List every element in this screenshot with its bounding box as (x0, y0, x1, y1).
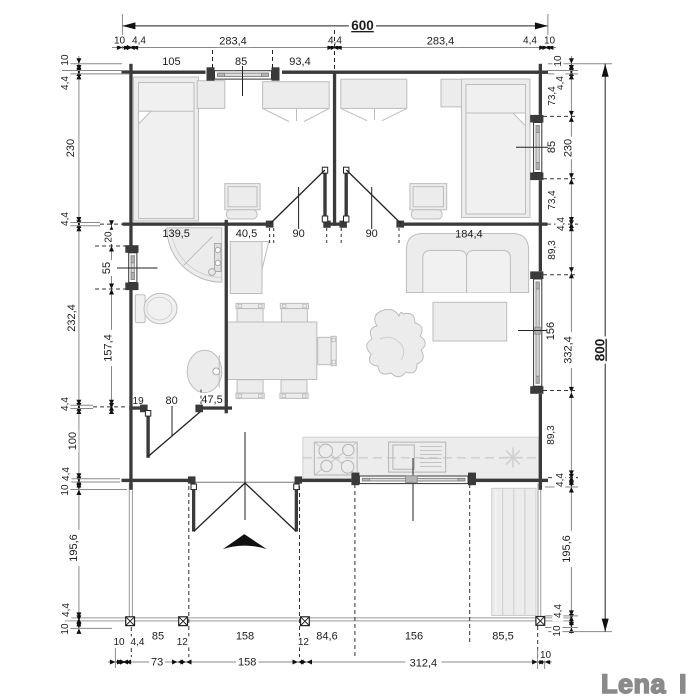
svg-text:4,4: 4,4 (523, 36, 537, 47)
svg-text:283,4: 283,4 (219, 36, 247, 48)
svg-text:73: 73 (151, 657, 163, 669)
svg-text:12: 12 (177, 637, 189, 648)
svg-text:10: 10 (60, 484, 71, 496)
svg-text:157,4: 157,4 (103, 334, 115, 362)
svg-text:89,3: 89,3 (546, 425, 557, 445)
svg-text:84,6: 84,6 (316, 631, 337, 643)
svg-text:10: 10 (544, 36, 556, 47)
svg-text:19: 19 (133, 396, 145, 407)
svg-text:139,5: 139,5 (162, 228, 190, 240)
svg-text:195,6: 195,6 (68, 534, 80, 562)
svg-text:800: 800 (593, 339, 608, 362)
svg-text:4,4: 4,4 (61, 603, 72, 617)
svg-text:12: 12 (298, 637, 310, 648)
svg-text:90: 90 (366, 228, 378, 240)
svg-text:312,4: 312,4 (410, 658, 438, 670)
svg-text:10: 10 (540, 650, 552, 661)
svg-text:85: 85 (152, 631, 164, 643)
svg-text:10: 10 (114, 36, 126, 47)
svg-text:4,4: 4,4 (555, 473, 566, 487)
svg-text:4,4: 4,4 (132, 36, 146, 47)
svg-text:4,4: 4,4 (553, 604, 564, 618)
svg-text:4,4: 4,4 (556, 217, 567, 231)
svg-text:Lena I: Lena I (601, 669, 687, 699)
svg-text:105: 105 (162, 56, 180, 68)
svg-text:85: 85 (235, 56, 247, 68)
svg-text:100: 100 (67, 432, 79, 450)
svg-text:4,4: 4,4 (131, 637, 145, 648)
svg-text:4,4: 4,4 (60, 212, 71, 226)
svg-text:156: 156 (405, 631, 423, 643)
svg-text:232,4: 232,4 (66, 304, 78, 332)
svg-text:184,4: 184,4 (455, 229, 483, 241)
svg-text:73,4: 73,4 (547, 190, 558, 210)
svg-text:195,6: 195,6 (561, 535, 573, 563)
svg-text:4,4: 4,4 (60, 397, 71, 411)
svg-text:4,4: 4,4 (328, 36, 342, 47)
svg-text:93,4: 93,4 (289, 56, 310, 68)
svg-text:283,4: 283,4 (427, 36, 455, 48)
svg-text:10: 10 (553, 55, 564, 67)
svg-text:47,5: 47,5 (201, 394, 222, 406)
svg-text:10: 10 (113, 637, 125, 648)
svg-text:158: 158 (236, 631, 254, 643)
svg-text:158: 158 (238, 657, 256, 669)
svg-text:600: 600 (351, 18, 374, 33)
svg-text:73,4: 73,4 (547, 86, 558, 106)
svg-text:4,4: 4,4 (60, 76, 71, 90)
svg-text:10: 10 (60, 623, 71, 635)
svg-text:40,5: 40,5 (236, 228, 257, 240)
svg-text:90: 90 (292, 228, 304, 240)
svg-text:332,4: 332,4 (562, 336, 574, 364)
svg-text:20: 20 (104, 231, 115, 243)
svg-text:55: 55 (101, 262, 113, 274)
svg-text:85,5: 85,5 (492, 631, 513, 643)
svg-text:230: 230 (562, 139, 574, 157)
svg-text:10: 10 (60, 54, 71, 66)
svg-text:4,4: 4,4 (61, 467, 72, 481)
svg-text:89,3: 89,3 (547, 240, 558, 260)
svg-text:10: 10 (552, 625, 563, 637)
svg-text:230: 230 (65, 139, 77, 157)
svg-text:80: 80 (165, 395, 177, 407)
